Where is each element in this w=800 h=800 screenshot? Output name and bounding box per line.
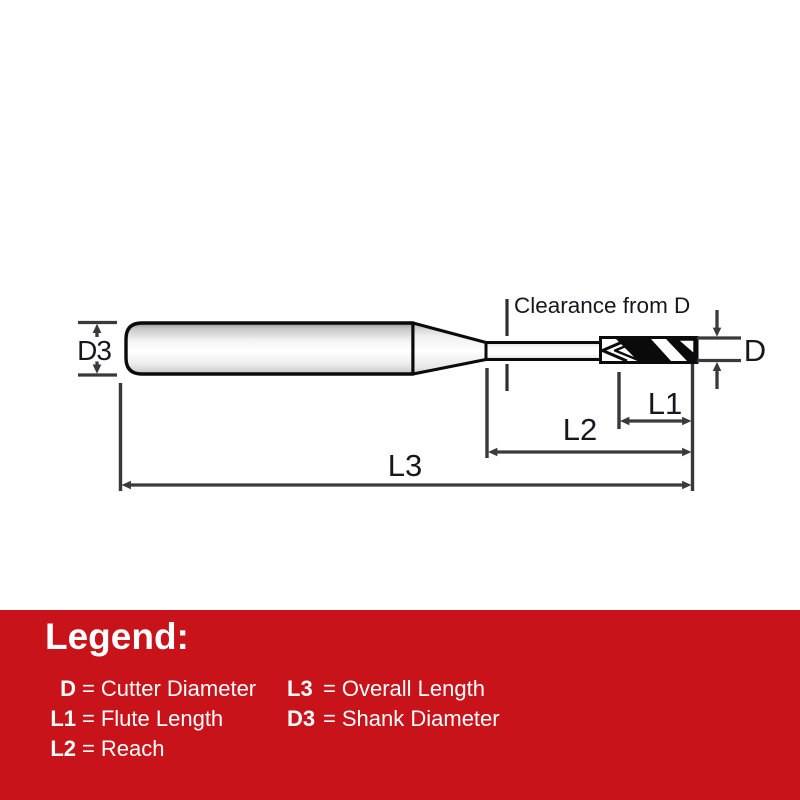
tool-shank <box>126 323 413 374</box>
legend-entry-empty <box>287 734 500 764</box>
l2-label: L2 <box>563 412 597 447</box>
legend-entry-d: D=Cutter Diameter <box>46 674 287 704</box>
legend-entries: D=Cutter Diameter L3=Overall Length L1=F… <box>46 674 500 764</box>
legend-code: D <box>46 674 76 704</box>
l1-arrowhead-right <box>682 417 691 425</box>
page: D3 Clearance from D D <box>0 0 800 800</box>
legend-code: D3 <box>287 704 317 734</box>
end-mill-tool <box>126 323 697 374</box>
legend-desc: Reach <box>101 736 165 761</box>
equals-sign: = <box>82 674 95 704</box>
d-arrowhead-up <box>713 362 722 371</box>
equals-sign: = <box>82 734 95 764</box>
legend-desc: Cutter Diameter <box>101 676 256 701</box>
l3-arrowhead-left <box>122 481 131 489</box>
end-mill-diagram: D3 Clearance from D D <box>0 0 800 610</box>
l1-arrowhead-left <box>620 417 629 425</box>
dimension-l2 <box>488 448 692 456</box>
legend-entry-d3: D3=Shank Diameter <box>287 704 500 734</box>
legend-code: L2 <box>46 734 76 764</box>
l1-label: L1 <box>648 386 682 421</box>
legend-code: L1 <box>46 704 76 734</box>
d-label: D <box>744 333 766 368</box>
equals-sign: = <box>82 704 95 734</box>
legend-entry-l3: L3=Overall Length <box>287 674 500 704</box>
legend-code: L3 <box>287 674 317 704</box>
equals-sign: = <box>323 704 336 734</box>
l2-arrowhead-right <box>682 448 691 456</box>
legend-desc: Overall Length <box>342 676 485 701</box>
tool-cutter <box>601 338 698 363</box>
l3-label: L3 <box>388 448 422 483</box>
l3-arrowhead-right <box>682 481 691 489</box>
dimension-d <box>697 310 741 389</box>
tool-neck <box>486 343 604 360</box>
legend-title: Legend: <box>45 616 189 658</box>
legend-desc: Shank Diameter <box>342 706 500 731</box>
equals-sign: = <box>323 674 336 704</box>
clearance-label: Clearance from D <box>514 293 690 318</box>
legend-desc: Flute Length <box>101 706 223 731</box>
d3-label: D3 <box>77 335 111 366</box>
tool-taper <box>413 323 486 374</box>
l2-arrowhead-left <box>488 448 497 456</box>
d-arrowhead-down <box>713 328 722 337</box>
legend-panel: Legend: D=Cutter Diameter L3=Overall Len… <box>0 610 800 800</box>
diagram-area: D3 Clearance from D D <box>0 0 800 610</box>
legend-entry-l2: L2=Reach <box>46 734 287 764</box>
d3-arrowhead-up <box>93 324 102 333</box>
legend-entry-l1: L1=Flute Length <box>46 704 287 734</box>
